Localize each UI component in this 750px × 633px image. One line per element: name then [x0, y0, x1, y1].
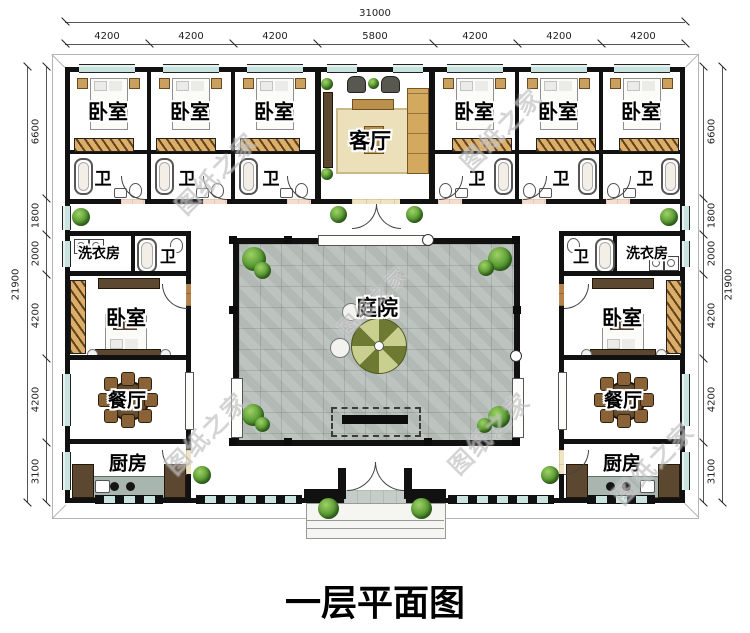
- step-line: [306, 528, 444, 529]
- dimension-segment: 4200: [77, 31, 137, 42]
- column: [424, 438, 432, 446]
- room-label-bath: 卫: [573, 243, 589, 267]
- wardrobe-icon: [536, 138, 596, 152]
- column: [512, 236, 520, 244]
- threshold-bar: [342, 415, 408, 424]
- dimension-line: [46, 67, 47, 503]
- window: [163, 64, 219, 73]
- window: [247, 64, 303, 73]
- column: [229, 438, 237, 446]
- chair-icon: [640, 393, 654, 407]
- window: [79, 64, 135, 73]
- bush-icon: [660, 208, 678, 226]
- bush-icon: [541, 466, 559, 484]
- dimension-segment: 3100: [31, 450, 42, 494]
- wardrobe-icon: [70, 280, 86, 354]
- bush-icon: [406, 206, 423, 223]
- dimension-segment: 4200: [31, 294, 42, 338]
- nightstand-icon: [129, 78, 140, 89]
- column: [513, 306, 521, 314]
- chair-icon: [121, 414, 135, 428]
- room-label-bath: 卫: [95, 165, 112, 190]
- room-label-bath: 卫: [553, 165, 570, 190]
- column: [229, 306, 237, 314]
- window: [531, 64, 587, 73]
- nightstand-icon: [579, 78, 590, 89]
- bathtub-icon: [595, 238, 615, 273]
- nightstand-icon: [495, 78, 506, 89]
- plant-icon: [321, 168, 333, 180]
- wall: [559, 231, 680, 236]
- plant-icon: [255, 417, 270, 432]
- sliding-door: [558, 372, 567, 430]
- room-label-living: 客厅: [349, 125, 391, 155]
- armchair-icon: [381, 76, 400, 93]
- bush-icon: [318, 498, 339, 519]
- column: [284, 236, 292, 244]
- room-label-dining: 餐厅: [108, 386, 146, 413]
- room-label-dining: 餐厅: [604, 386, 642, 413]
- wall: [599, 72, 603, 199]
- window: [62, 206, 71, 230]
- step-line: [306, 520, 444, 521]
- page-title: 一层平面图: [0, 574, 750, 626]
- wall: [315, 72, 321, 204]
- dresser-icon: [98, 278, 160, 289]
- floor-plan: 31000 4200 4200 4200 5800 4200 4200 4200…: [0, 0, 750, 633]
- room-label-bedroom: 卧室: [602, 302, 642, 331]
- room-label-laundry: 洗衣房: [78, 243, 120, 263]
- plant-icon: [368, 78, 379, 89]
- wardrobe-icon: [619, 138, 679, 152]
- window: [95, 495, 163, 504]
- plant-icon: [478, 260, 494, 276]
- bathtub-icon: [137, 238, 157, 273]
- window: [614, 64, 670, 73]
- window: [447, 64, 503, 73]
- dimension-segment: 5800: [345, 31, 405, 42]
- dimension-segment: 4200: [245, 31, 305, 42]
- window: [62, 452, 71, 490]
- nightstand-icon: [77, 78, 88, 89]
- bathtub-icon: [661, 158, 680, 195]
- entrance-pier: [404, 468, 412, 499]
- bush-icon: [193, 466, 211, 484]
- wardrobe-icon: [156, 138, 216, 152]
- dimension-line: [27, 67, 28, 503]
- chair-icon: [121, 372, 135, 386]
- wall: [147, 72, 151, 199]
- room-label-bath: 卫: [637, 165, 654, 190]
- dimension-segment: 4200: [613, 31, 673, 42]
- room-label-bedroom: 卧室: [88, 96, 128, 125]
- chair-icon: [617, 372, 631, 386]
- bush-icon: [72, 208, 90, 226]
- screen-door: [318, 235, 430, 246]
- window: [196, 495, 302, 504]
- window: [393, 64, 423, 73]
- bathtub-icon: [578, 158, 597, 195]
- entrance-opening: [344, 490, 406, 503]
- kitchen-cabinet-icon: [72, 464, 94, 498]
- sideboard-icon: [352, 99, 394, 110]
- column: [510, 350, 522, 362]
- stove-icon: [110, 482, 119, 491]
- dimension-segment: 4200: [445, 31, 505, 42]
- entrance-pier: [304, 489, 340, 499]
- window: [327, 64, 357, 73]
- stove-icon: [126, 482, 135, 491]
- wall: [564, 355, 680, 360]
- sofa-icon: [407, 88, 429, 174]
- nightstand-icon: [443, 78, 454, 89]
- nightstand-icon: [243, 78, 254, 89]
- window: [62, 374, 71, 426]
- tv-cabinet-icon: [323, 92, 333, 168]
- plant-icon: [321, 78, 333, 90]
- nightstand-icon: [211, 78, 222, 89]
- room-label-bedroom: 卧室: [170, 96, 210, 125]
- room-label-bedroom: 卧室: [621, 96, 661, 125]
- dimension-line: [65, 22, 685, 23]
- room-label-laundry: 洗衣房: [626, 243, 668, 263]
- room-label-bath: 卫: [160, 243, 176, 267]
- dimension-total-right: 21900: [724, 263, 735, 307]
- dimension-segment: 4200: [161, 31, 221, 42]
- dimension-segment: 3100: [707, 450, 718, 494]
- dimension-segment: 2000: [707, 232, 718, 276]
- entrance-pier: [338, 468, 346, 499]
- window: [681, 206, 690, 230]
- dimension-segment: 6600: [707, 110, 718, 154]
- dimension-segment: 4200: [707, 378, 718, 422]
- nightstand-icon: [159, 78, 170, 89]
- chair-icon: [617, 414, 631, 428]
- nightstand-icon: [610, 78, 621, 89]
- bathtub-icon: [74, 158, 93, 195]
- window: [448, 495, 554, 504]
- dimension-segment: 2000: [31, 232, 42, 276]
- room-label-bedroom: 卧室: [254, 96, 294, 125]
- wardrobe-icon: [666, 280, 682, 354]
- wall: [70, 271, 186, 276]
- window: [681, 452, 690, 490]
- room-label-bath: 卫: [263, 165, 280, 190]
- room-label-kitchen: 厨房: [109, 449, 147, 476]
- wall: [70, 355, 186, 360]
- entrance-pier: [410, 489, 446, 499]
- column: [229, 236, 237, 244]
- plant-icon: [254, 262, 271, 279]
- bush-icon: [411, 498, 432, 519]
- wall: [564, 271, 680, 276]
- dimension-total-left: 21900: [11, 263, 22, 307]
- dresser-icon: [592, 278, 654, 289]
- column: [512, 438, 520, 446]
- nightstand-icon: [662, 78, 673, 89]
- wall: [429, 72, 435, 204]
- window: [681, 241, 690, 267]
- dimension-segment: 4200: [529, 31, 589, 42]
- wardrobe-icon: [74, 138, 134, 152]
- column: [284, 438, 292, 446]
- sink-icon: [95, 480, 110, 493]
- wall: [131, 236, 135, 271]
- room-label-bedroom: 卧室: [106, 302, 146, 331]
- column: [422, 234, 434, 246]
- dimension-segment: 4200: [707, 294, 718, 338]
- dimension-segment: 6600: [31, 110, 42, 154]
- bathtub-icon: [494, 158, 513, 195]
- bush-icon: [330, 206, 347, 223]
- chair-icon: [144, 393, 158, 407]
- stone-table-icon: [330, 338, 350, 358]
- dimension-total-top: 31000: [330, 8, 420, 19]
- nightstand-icon: [295, 78, 306, 89]
- armchair-icon: [347, 76, 366, 93]
- dimension-segment: 4200: [31, 378, 42, 422]
- dimension-line: [703, 67, 704, 503]
- dimension-line: [65, 44, 685, 45]
- window: [62, 241, 71, 267]
